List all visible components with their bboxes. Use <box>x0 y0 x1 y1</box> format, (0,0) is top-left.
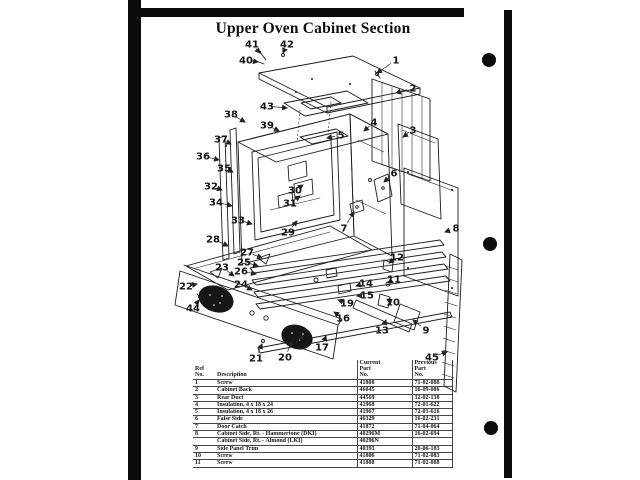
callout-number: 33 <box>231 216 245 227</box>
callout-number: 26 <box>234 267 248 278</box>
cell-ref: 9 <box>193 445 215 452</box>
table-row: Cabinet Side, Rt. - Almond (LKI)40296N <box>193 438 452 445</box>
callout-number: 30 <box>288 186 302 197</box>
callout-leader <box>403 133 408 137</box>
cell-current: 41968 <box>357 401 412 408</box>
cell-ref: 8 <box>193 431 215 438</box>
cell-current: 46329 <box>357 416 412 423</box>
table-header-row: RefNo.DescriptionCurrentPartNo.PreviousP… <box>193 360 452 380</box>
cell-desc: Screw <box>215 452 357 459</box>
table-row: 10Screw4180671-02-083 <box>193 452 452 459</box>
callout-number: 32 <box>204 182 218 193</box>
callout-number: 7 <box>341 224 348 235</box>
cell-previous: 71-04-064 <box>412 423 452 430</box>
callout-number: 24 <box>234 280 248 291</box>
callout-leader <box>253 254 262 258</box>
callout-number: 22 <box>179 282 193 293</box>
cell-ref: 6 <box>193 416 215 423</box>
cell-previous: 16-09-086 <box>412 387 452 394</box>
table-row: 6False Side4632916-02-231 <box>193 416 452 423</box>
cell-current: 44569 <box>357 394 412 401</box>
callout-number: 15 <box>360 291 374 302</box>
cell-desc: Door Catch <box>215 423 357 430</box>
callout-number: 37 <box>214 135 228 146</box>
callout-leader <box>445 230 450 232</box>
callout-number: 11 <box>387 275 401 286</box>
cell-previous: 71-02-088 <box>412 380 452 387</box>
callout-number: 19 <box>340 299 354 310</box>
cell-current: 41806 <box>357 452 412 459</box>
cell-previous: 16-02-231 <box>412 416 452 423</box>
cell-current: 41967 <box>357 409 412 416</box>
cell-previous: 71-02-083 <box>412 452 452 459</box>
callout-leader <box>273 107 287 108</box>
cell-current: 41808 <box>357 380 412 387</box>
cell-desc: Insulation, 4 x 18 x 24 <box>215 401 357 408</box>
cell-ref: 4 <box>193 401 215 408</box>
callout-number: 17 <box>315 343 329 354</box>
cell-current: 40296M <box>357 431 412 438</box>
table-row: 7Door Catch4187271-04-064 <box>193 423 452 430</box>
cell-desc: Rear Duct <box>215 394 357 401</box>
callout-number: 23 <box>215 263 229 274</box>
callout-number: 6 <box>391 169 398 180</box>
callout-number: 35 <box>217 164 231 175</box>
table-row: 8Cabinet Side, Rt. - Hammertone (DKI)402… <box>193 431 452 438</box>
callout-number: 34 <box>209 198 223 209</box>
callout-leader <box>364 126 370 131</box>
cell-desc: Cabinet Side, Rt. - Hammertone (DKI) <box>215 431 357 438</box>
cell-previous: 16-02-694 <box>412 431 452 438</box>
cell-ref: 5 <box>193 409 215 416</box>
table-row: 9Side Panel Trim4039320-06-183 <box>193 445 452 452</box>
cell-current: 40296N <box>357 438 412 445</box>
column-header-current: CurrentPartNo. <box>357 360 412 380</box>
scanned-manual-page: Upper Oven Cabinet Section <box>0 0 640 480</box>
callout-number: 16 <box>336 314 350 325</box>
parts-table: RefNo.DescriptionCurrentPartNo.PreviousP… <box>193 360 452 468</box>
cell-desc: False Side <box>215 416 357 423</box>
cell-previous: 71-02-088 <box>412 460 452 467</box>
cell-ref: 3 <box>193 394 215 401</box>
callout-number: 12 <box>390 253 404 264</box>
cell-desc: Cabinet Side, Rt. - Almond (LKI) <box>215 438 357 445</box>
cell-desc: Screw <box>215 380 357 387</box>
callout-number: 14 <box>359 279 373 290</box>
cell-current: 41872 <box>357 423 412 430</box>
table-row: 5Insulation, 4 x 18 x 264196772-01-616 <box>193 409 452 416</box>
callout-leader <box>209 157 219 160</box>
callout-leader <box>327 136 335 138</box>
table-row: 4Insulation, 4 x 18 x 244196872-01-622 <box>193 401 452 408</box>
callout-number: 31 <box>283 199 297 210</box>
column-header-previous: PreviousPartNo. <box>412 360 452 380</box>
cell-current: 40393 <box>357 445 412 452</box>
cell-previous: 72-01-622 <box>412 401 452 408</box>
cell-ref: 7 <box>193 423 215 430</box>
table-row: 2Cabinet Back4604516-09-086 <box>193 387 452 394</box>
callout-number: 43 <box>260 102 274 113</box>
cell-ref: 1 <box>193 380 215 387</box>
callout-number: 10 <box>386 298 400 309</box>
callout-number: 39 <box>260 121 274 132</box>
parts-list: RefNo.DescriptionCurrentPartNo.PreviousP… <box>193 360 453 468</box>
callout-number: 36 <box>196 152 210 163</box>
cell-previous: 32-02-138 <box>412 394 452 401</box>
cell-ref <box>193 438 215 445</box>
callout-number: 18 <box>292 339 306 350</box>
column-header-desc: Description <box>215 360 357 380</box>
table-row: 11Screw4180871-02-088 <box>193 460 452 467</box>
cell-current: 41808 <box>357 460 412 467</box>
callout-number: 40 <box>239 56 253 67</box>
callout-leader <box>250 264 258 266</box>
table-row: 3Rear Duct4456932-02-138 <box>193 394 452 401</box>
cell-desc: Cabinet Back <box>215 387 357 394</box>
cell-desc: Insulation, 4 x 18 x 26 <box>215 409 357 416</box>
callout-number: 2 <box>410 84 417 95</box>
callout-number: 9 <box>423 326 430 337</box>
callout-number: 28 <box>206 235 220 246</box>
callout-number: 13 <box>375 326 389 337</box>
callout-number: 29 <box>281 228 295 239</box>
callout-number: 3 <box>410 126 417 137</box>
table-row: 1Screw4180871-02-088 <box>193 380 452 387</box>
cell-desc: Screw <box>215 460 357 467</box>
cell-desc: Side Panel Trim <box>215 445 357 452</box>
cell-previous: 20-06-183 <box>412 445 452 452</box>
callout-leader <box>244 222 252 224</box>
cell-ref: 2 <box>193 387 215 394</box>
cell-previous: 72-01-616 <box>412 409 452 416</box>
callout-number: 38 <box>224 110 238 121</box>
cell-current: 46045 <box>357 387 412 394</box>
column-header-ref: RefNo. <box>193 360 215 380</box>
callout-number: 41 <box>245 40 259 51</box>
diagram-linework <box>175 51 462 392</box>
cell-ref: 11 <box>193 460 215 467</box>
cell-ref: 10 <box>193 452 215 459</box>
callout-number: 5 <box>338 131 345 142</box>
callout-number: 4 <box>371 118 378 129</box>
callout-number: 42 <box>280 40 294 51</box>
callout-number: 44 <box>186 304 200 315</box>
cell-previous <box>412 438 452 445</box>
callout-number: 1 <box>393 56 400 67</box>
callout-number: 8 <box>453 224 460 235</box>
